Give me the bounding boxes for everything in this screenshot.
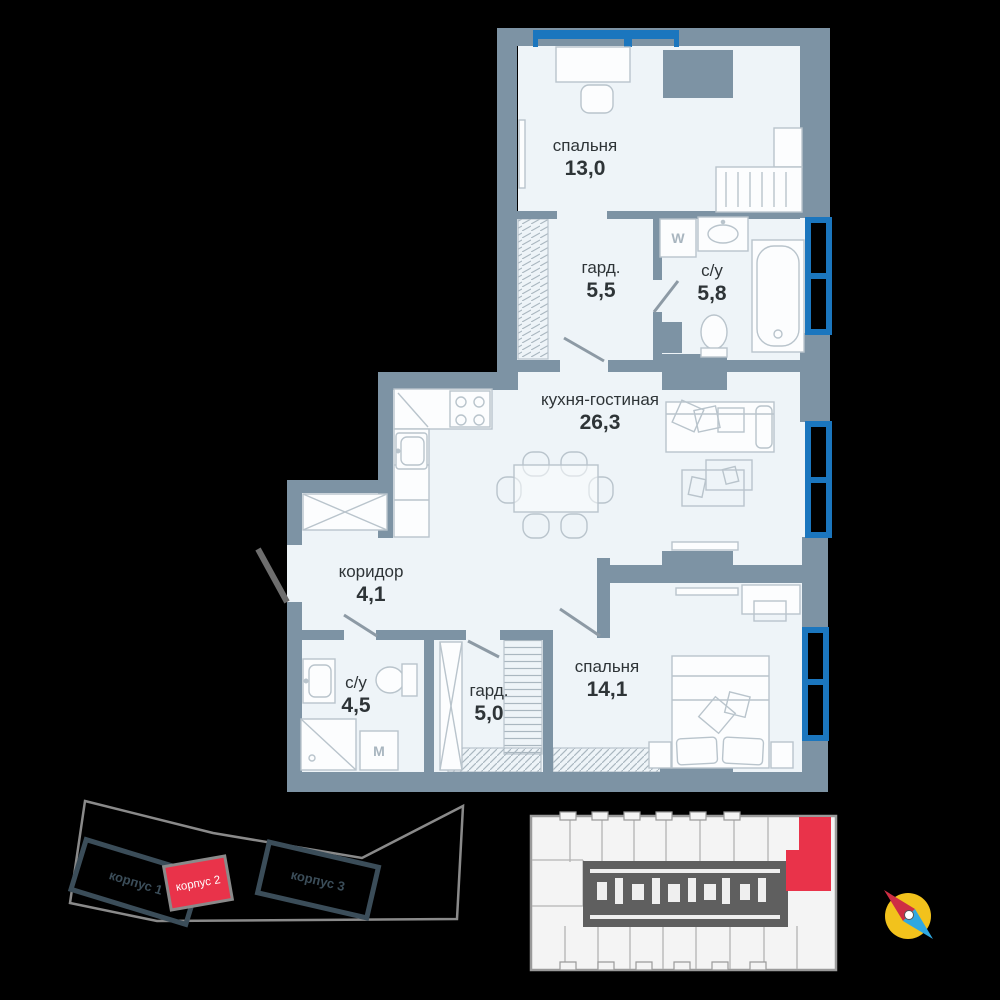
wardrobe-shelves-bottom: [504, 638, 542, 754]
corridor-closet: [303, 494, 387, 530]
entrance-door: [258, 549, 287, 602]
washer-bottom-letter: M: [373, 743, 385, 759]
wall-corridor-left-upper: [287, 480, 302, 545]
building-marker-2-selected[interactable]: корпус 2: [164, 856, 233, 910]
shaft-bedroom-top: [663, 50, 733, 98]
floorplan-page: W M корпус 1 корпус 2 корпус 3: [0, 0, 1000, 1000]
chair: [581, 85, 613, 113]
window-right-3: [803, 630, 828, 738]
core-block: [583, 861, 788, 927]
cabinet: [774, 128, 802, 167]
window-right-2: [806, 424, 831, 535]
svg-text:корпус 1: корпус 1: [107, 867, 164, 897]
sink-bath-top: [698, 217, 748, 251]
svg-text:корпус 3: корпус 3: [289, 867, 346, 894]
site-plan: корпус 1 корпус 2 корпус 3: [70, 801, 463, 924]
shower: [301, 719, 356, 770]
tv-kitchen: [672, 542, 738, 550]
tv-bedroom: [676, 588, 738, 595]
stove: [450, 391, 490, 427]
sink-bath-bottom: [303, 659, 335, 703]
compass-icon: [884, 890, 933, 939]
window-right-1: [806, 220, 831, 332]
kitchen-sink: [396, 433, 427, 469]
wardrobe-rail: [716, 167, 802, 212]
building-marker-3[interactable]: корпус 3: [258, 842, 379, 918]
tall-cabinet: [440, 642, 462, 770]
wall-left-top: [497, 28, 517, 220]
mirror: [519, 120, 525, 188]
bed: [672, 656, 769, 768]
wall-corridor-left-lower: [287, 602, 302, 772]
wall-right-top: [800, 28, 830, 218]
shaft-bathroom-top: [662, 354, 727, 390]
toilet-bottom: [376, 664, 417, 696]
toilet-top: [701, 315, 727, 357]
bathtub: [752, 240, 804, 352]
wardrobe-shelves-top: [518, 219, 548, 359]
nightstand-right: [771, 742, 793, 768]
apartment-plan: W M корпус 1 корпус 2 корпус 3: [0, 0, 1000, 1000]
washer-top-letter: W: [671, 230, 685, 246]
media-wall-block: [662, 551, 733, 583]
nightstand-left: [649, 742, 671, 768]
sofa: [666, 400, 774, 452]
floor-overview: [531, 812, 836, 970]
